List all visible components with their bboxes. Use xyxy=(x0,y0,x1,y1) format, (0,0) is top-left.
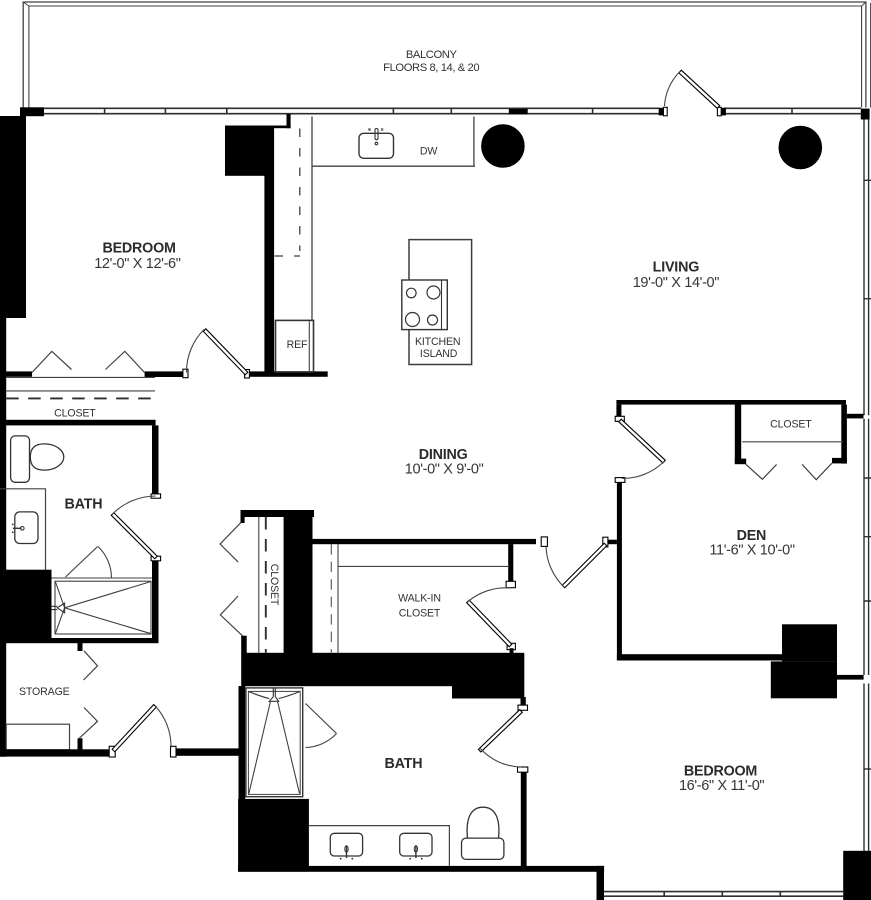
svg-text:16'-6" X 11'-0": 16'-6" X 11'-0" xyxy=(679,778,764,794)
svg-text:REF: REF xyxy=(287,339,308,351)
svg-text:ISLAND: ISLAND xyxy=(420,348,458,360)
svg-text:STORAGE: STORAGE xyxy=(19,686,70,698)
svg-text:BALCONY: BALCONY xyxy=(406,49,458,61)
svg-text:CLOSET: CLOSET xyxy=(770,418,812,430)
svg-text:DEN: DEN xyxy=(737,528,767,544)
svg-text:BEDROOM: BEDROOM xyxy=(102,240,175,256)
svg-text:11'-6" X 10'-0": 11'-6" X 10'-0" xyxy=(709,543,794,559)
svg-text:KITCHEN: KITCHEN xyxy=(415,336,460,348)
svg-text:WALK-IN: WALK-IN xyxy=(398,592,441,604)
svg-text:CLOSET: CLOSET xyxy=(54,407,96,419)
svg-text:CLOSET: CLOSET xyxy=(399,608,441,620)
svg-text:BATH: BATH xyxy=(64,497,102,513)
svg-text:19'-0" X 14'-0": 19'-0" X 14'-0" xyxy=(633,275,720,291)
svg-text:DW: DW xyxy=(420,146,438,158)
svg-text:CLOSET: CLOSET xyxy=(268,564,280,606)
svg-text:10'-0" X 9'-0": 10'-0" X 9'-0" xyxy=(405,462,484,478)
svg-text:BEDROOM: BEDROOM xyxy=(684,763,757,779)
svg-text:BATH: BATH xyxy=(384,756,422,772)
svg-text:LIVING: LIVING xyxy=(653,260,700,276)
svg-text:FLOORS 8, 14, & 20: FLOORS 8, 14, & 20 xyxy=(383,62,479,74)
svg-text:12'-0" X 12'-6": 12'-0" X 12'-6" xyxy=(94,256,181,272)
